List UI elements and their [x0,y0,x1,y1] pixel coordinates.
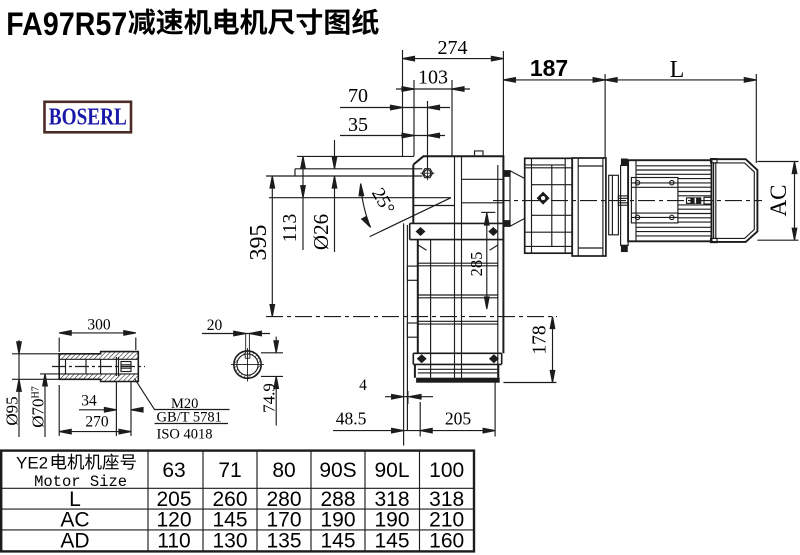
svg-text:4: 4 [359,377,367,394]
svg-text:178: 178 [530,325,551,354]
svg-text:90L: 90L [374,459,409,482]
svg-text:318: 318 [374,488,409,511]
svg-text:190: 190 [320,509,355,532]
svg-text:285: 285 [467,252,486,277]
svg-text:170: 170 [266,509,301,532]
svg-text:Ø26: Ø26 [309,214,333,250]
svg-text:318: 318 [429,488,464,511]
svg-text:187: 187 [530,55,568,81]
svg-text:205: 205 [445,409,472,429]
svg-text:145: 145 [212,509,247,532]
svg-text:80: 80 [272,459,295,482]
svg-text:AC: AC [60,509,89,532]
svg-text:AC: AC [766,185,791,217]
svg-text:100: 100 [429,459,464,482]
svg-text:BOSERL: BOSERL [49,105,127,131]
svg-text:160: 160 [429,530,464,553]
svg-text:L: L [69,488,81,511]
svg-text:48.5: 48.5 [336,409,367,429]
svg-text:274: 274 [438,37,468,59]
svg-text:GB/T 5781: GB/T 5781 [157,410,222,426]
svg-text:ISO 4018: ISO 4018 [157,427,213,443]
svg-text:AD: AD [60,530,89,553]
svg-text:210: 210 [429,509,464,532]
svg-text:20: 20 [207,317,223,334]
svg-text:35: 35 [348,114,368,136]
svg-text:71: 71 [218,459,241,482]
svg-text:113: 113 [280,214,301,243]
svg-text:145: 145 [320,530,355,553]
svg-text:FA97R57: FA97R57 [6,8,127,43]
svg-text:103: 103 [418,67,448,89]
svg-text:Ø95: Ø95 [3,396,22,425]
svg-text:130: 130 [212,530,247,553]
svg-text:280: 280 [266,488,301,511]
svg-text:70: 70 [348,85,368,107]
svg-text:135: 135 [266,530,301,553]
svg-text:395: 395 [246,225,272,261]
svg-text:63: 63 [162,459,185,482]
svg-text:270: 270 [85,414,109,431]
svg-text:YE2: YE2 [16,454,48,473]
svg-text:120: 120 [156,509,191,532]
svg-text:190: 190 [374,509,409,532]
svg-text:145: 145 [374,530,409,553]
svg-text:90S: 90S [319,459,356,482]
svg-text:300: 300 [87,317,111,334]
svg-text:205: 205 [156,488,191,511]
svg-text:34: 34 [81,393,97,410]
svg-text:74.9: 74.9 [260,383,279,413]
svg-text:288: 288 [320,488,355,511]
svg-text:260: 260 [212,488,247,511]
svg-text:L: L [670,57,685,83]
svg-text:110: 110 [157,530,190,553]
